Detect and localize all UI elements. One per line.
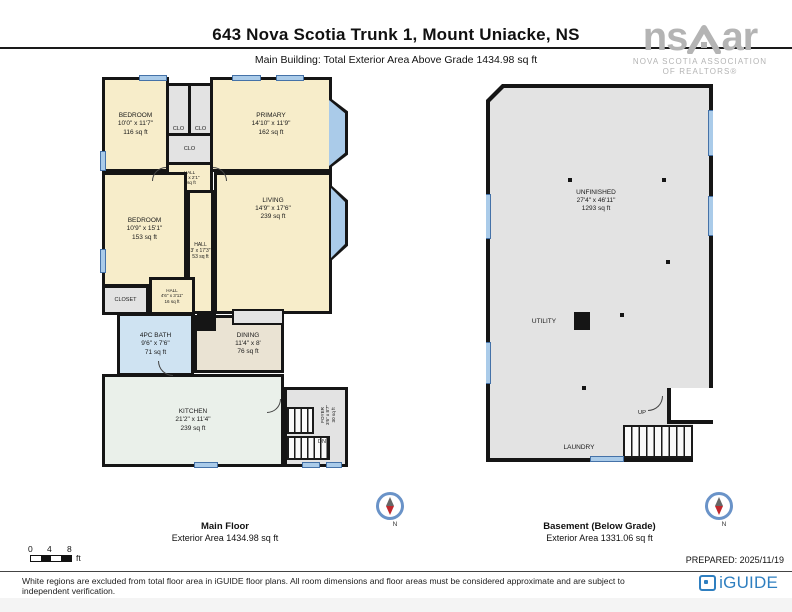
iguide-brand-text: iGUIDE	[719, 573, 778, 593]
room-name: KITCHEN	[175, 408, 210, 416]
support-post	[666, 260, 670, 264]
room-name: DINING	[235, 332, 261, 340]
compass-north-label: N	[385, 521, 405, 528]
room-bedroom-2: BEDROOM 10'9" x 15'1" 153 sq ft	[102, 172, 187, 287]
counter-block	[232, 309, 284, 325]
footer-divider	[0, 571, 792, 572]
up-label: UP	[630, 410, 654, 416]
unfinished-label: UNFINISHED 27'4" x 46'11" 1293 sq ft	[506, 189, 686, 213]
window	[485, 194, 491, 239]
nsar-logo-ns: ns	[643, 20, 688, 54]
room-area: 239 sq ft	[175, 425, 210, 433]
room-closet-right: CLO	[188, 83, 213, 136]
dn-label: DN	[318, 439, 326, 445]
nsar-sub-line1: NOVA SCOTIA ASSOCIATION	[614, 57, 786, 67]
room-area: 71 sq ft	[140, 349, 171, 357]
room-area: 153 sq ft	[127, 234, 163, 242]
room-closet-mid: CLO	[166, 133, 213, 165]
main-floor-caption: Main Floor Exterior Area 1434.98 sq ft	[102, 521, 348, 545]
main-floor-plan: BEDROOM 10'0" x 11'7" 116 sq ft PRIMARY …	[102, 77, 348, 467]
scale-bar: 0 4 8 ft	[28, 544, 128, 566]
bottom-margin-band	[0, 598, 792, 612]
room-name: CLO	[184, 146, 195, 153]
furnace-block	[574, 312, 590, 330]
room-name: CLO	[173, 126, 184, 133]
iguide-logo: iGUIDE	[699, 573, 778, 593]
window	[326, 462, 342, 468]
room-bedroom-1: BEDROOM 10'0" x 11'7" 116 sq ft	[102, 77, 169, 172]
iguide-icon	[699, 575, 716, 591]
stairs-up	[287, 407, 314, 434]
chimney-block	[197, 314, 216, 331]
room-area: 76 sq ft	[235, 348, 261, 356]
compass-icon: N	[375, 492, 405, 532]
foyer-label: FOYER 3'6" x 8'7" 30 sq ft	[320, 395, 336, 435]
scale-bar-segments	[30, 555, 72, 562]
room-dims: 11'4" x 8'	[235, 340, 261, 348]
compass-north-label: N	[714, 521, 734, 528]
window	[100, 249, 106, 273]
room-closet: CLOSET	[102, 285, 149, 315]
caption-title: Basement (Below Grade)	[486, 521, 713, 533]
room-area: 162 sq ft	[252, 129, 291, 137]
window	[276, 75, 304, 81]
window	[139, 75, 167, 81]
room-dims: 10'0" x 11'7"	[118, 120, 153, 128]
floorplan-page: 643 Nova Scotia Trunk 1, Mount Uniacke, …	[0, 0, 792, 612]
window	[708, 196, 714, 236]
window	[100, 151, 106, 171]
prepared-date: PREPARED: 2025/11/19	[686, 555, 784, 565]
laundry-label: LAUNDRY	[544, 444, 614, 451]
basement-plan: UNFINISHED 27'4" x 46'11" 1293 sq ft UTI…	[486, 84, 713, 462]
room-name: 4PC BATH	[140, 332, 171, 340]
support-post	[582, 386, 586, 390]
window	[708, 110, 714, 156]
room-dims: 27'4" x 46'11"	[506, 197, 686, 205]
room-name: BEDROOM	[127, 217, 163, 225]
window	[485, 342, 491, 384]
room-name: UNFINISHED	[506, 189, 686, 197]
room-area: 53 sq ft	[190, 255, 210, 261]
room-dims: 4'6" x 3'11"	[161, 293, 183, 298]
room-hall-lower: HALL 4'6" x 3'11" 16 sq ft	[149, 277, 195, 315]
room-name: PRIMARY	[252, 112, 291, 120]
room-name: BEDROOM	[118, 112, 153, 120]
exterior-notch	[667, 388, 713, 424]
compass-icon: N	[704, 492, 734, 532]
room-dims: 21'2" x 11'4"	[175, 416, 210, 424]
room-area: 1293 sq ft	[506, 205, 686, 213]
room-dims: 14'9" x 17'6"	[255, 205, 291, 213]
room-name: CLO	[195, 126, 206, 133]
room-dims: 14'10" x 11'9"	[252, 120, 291, 128]
room-primary: PRIMARY 14'10" x 11'9" 162 sq ft	[210, 77, 332, 172]
stairs-basement-up	[623, 425, 693, 458]
room-name: CLOSET	[114, 297, 136, 304]
scale-tick-4: 4	[47, 544, 52, 554]
nsar-logo: ns ar NOVA SCOTIA ASSOCIATION OF REALTOR…	[614, 20, 786, 77]
room-area: 239 sq ft	[255, 213, 291, 221]
window	[194, 462, 218, 468]
room-bath: 4PC BATH 9'6" x 7'6" 71 sq ft	[117, 313, 194, 376]
bay-window-living	[331, 185, 348, 261]
caption-area: Exterior Area 1331.06 sq ft	[486, 533, 713, 545]
room-living: LIVING 14'9" x 17'6" 239 sq ft	[214, 172, 332, 314]
window	[590, 456, 624, 462]
nsar-house-icon	[687, 20, 721, 54]
room-area: 30 sq ft	[331, 395, 336, 435]
support-post	[662, 178, 666, 182]
room-area: 16 sq ft	[161, 299, 183, 304]
scale-tick-0: 0	[28, 544, 33, 554]
room-kitchen: KITCHEN 21'2" x 11'4" 239 sq ft	[102, 374, 284, 467]
support-post	[620, 313, 624, 317]
scale-tick-8: 8	[67, 544, 72, 554]
window	[232, 75, 261, 81]
room-dims: 10'9" x 15'1"	[127, 225, 163, 233]
nsar-logo-ar: ar	[721, 20, 757, 54]
utility-label: UTILITY	[516, 318, 572, 325]
bay-window-primary	[329, 97, 348, 169]
nsar-sub-line2: OF REALTORS®	[614, 67, 786, 77]
room-dims: 9'6" x 7'6"	[140, 340, 171, 348]
scale-unit: ft	[76, 553, 81, 563]
exterior-notch	[693, 424, 713, 462]
window	[302, 462, 320, 468]
disclaimer-text: White regions are excluded from total fl…	[22, 576, 662, 596]
support-post	[568, 178, 572, 182]
room-name: LIVING	[255, 197, 291, 205]
room-area: 116 sq ft	[118, 129, 153, 137]
basement-caption: Basement (Below Grade) Exterior Area 133…	[486, 521, 713, 545]
caption-title: Main Floor	[102, 521, 348, 533]
caption-area: Exterior Area 1434.98 sq ft	[102, 533, 348, 545]
